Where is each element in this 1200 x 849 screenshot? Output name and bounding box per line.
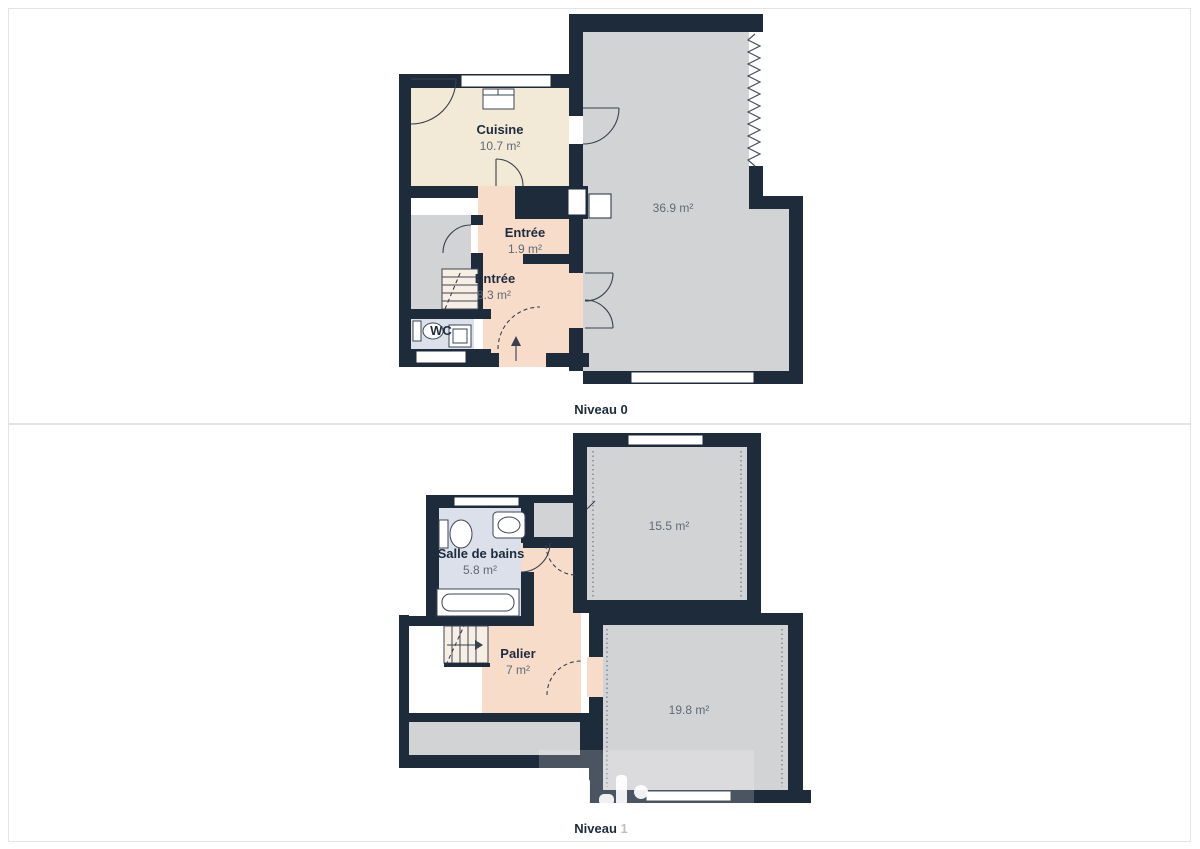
floorplan-panel-level-1: 15.5 m² Salle de bains 5.8 m² Palier 7 m… [8,424,1191,842]
window-bedroom-top [628,435,703,445]
bedroom-bottom-door-gap [587,657,603,697]
level-0-title: Niveau 0 [574,402,627,417]
label-entree-small: Entrée [505,225,545,240]
window-cuisine [461,75,551,87]
area-bathroom: 5.8 m² [463,563,497,577]
stairs-level-1 [444,626,490,667]
bathtub-icon [437,589,519,616]
area-living: 36.9 m² [653,201,694,215]
toilet-tank-icon [413,321,421,341]
label-bathroom: Salle de bains [438,546,525,561]
zigzag-wall-edge [748,34,760,166]
floorplan-panel-level-0: Cuisine 10.7 m² 36.9 m² Entrée 1.9 m² En… [8,8,1191,424]
area-palier: 7 m² [506,663,530,677]
sink-icon [449,325,471,347]
closet [531,503,573,537]
room-living-extension [749,209,789,371]
area-bedroom-top: 15.5 m² [649,519,690,533]
label-palier: Palier [500,646,535,661]
label-cuisine: Cuisine [477,122,524,137]
stairs-level-0 [442,269,478,309]
toilet-tank-icon [439,520,448,548]
floor-plan-level-1: 15.5 m² Salle de bains 5.8 m² Palier 7 m… [9,425,1190,841]
area-entree: 8.3 m² [477,288,511,302]
level-1-title: Niveau 1 [574,821,627,836]
toilet-bowl-icon [450,520,472,548]
label-wc: WC [430,323,452,338]
window-wc [416,351,466,363]
area-entree-small: 1.9 m² [508,242,542,256]
window-living [631,372,754,383]
entry-door-gap [499,353,546,367]
floor-plan-level-0: Cuisine 10.7 m² 36.9 m² Entrée 1.9 m² En… [9,9,1190,423]
window-bathroom [454,497,519,506]
watermark [539,750,754,836]
area-cuisine: 10.7 m² [480,139,521,153]
label-entree: Entrée [475,271,515,286]
area-bedroom-bottom: 19.8 m² [669,703,710,717]
room-entree [483,254,579,353]
